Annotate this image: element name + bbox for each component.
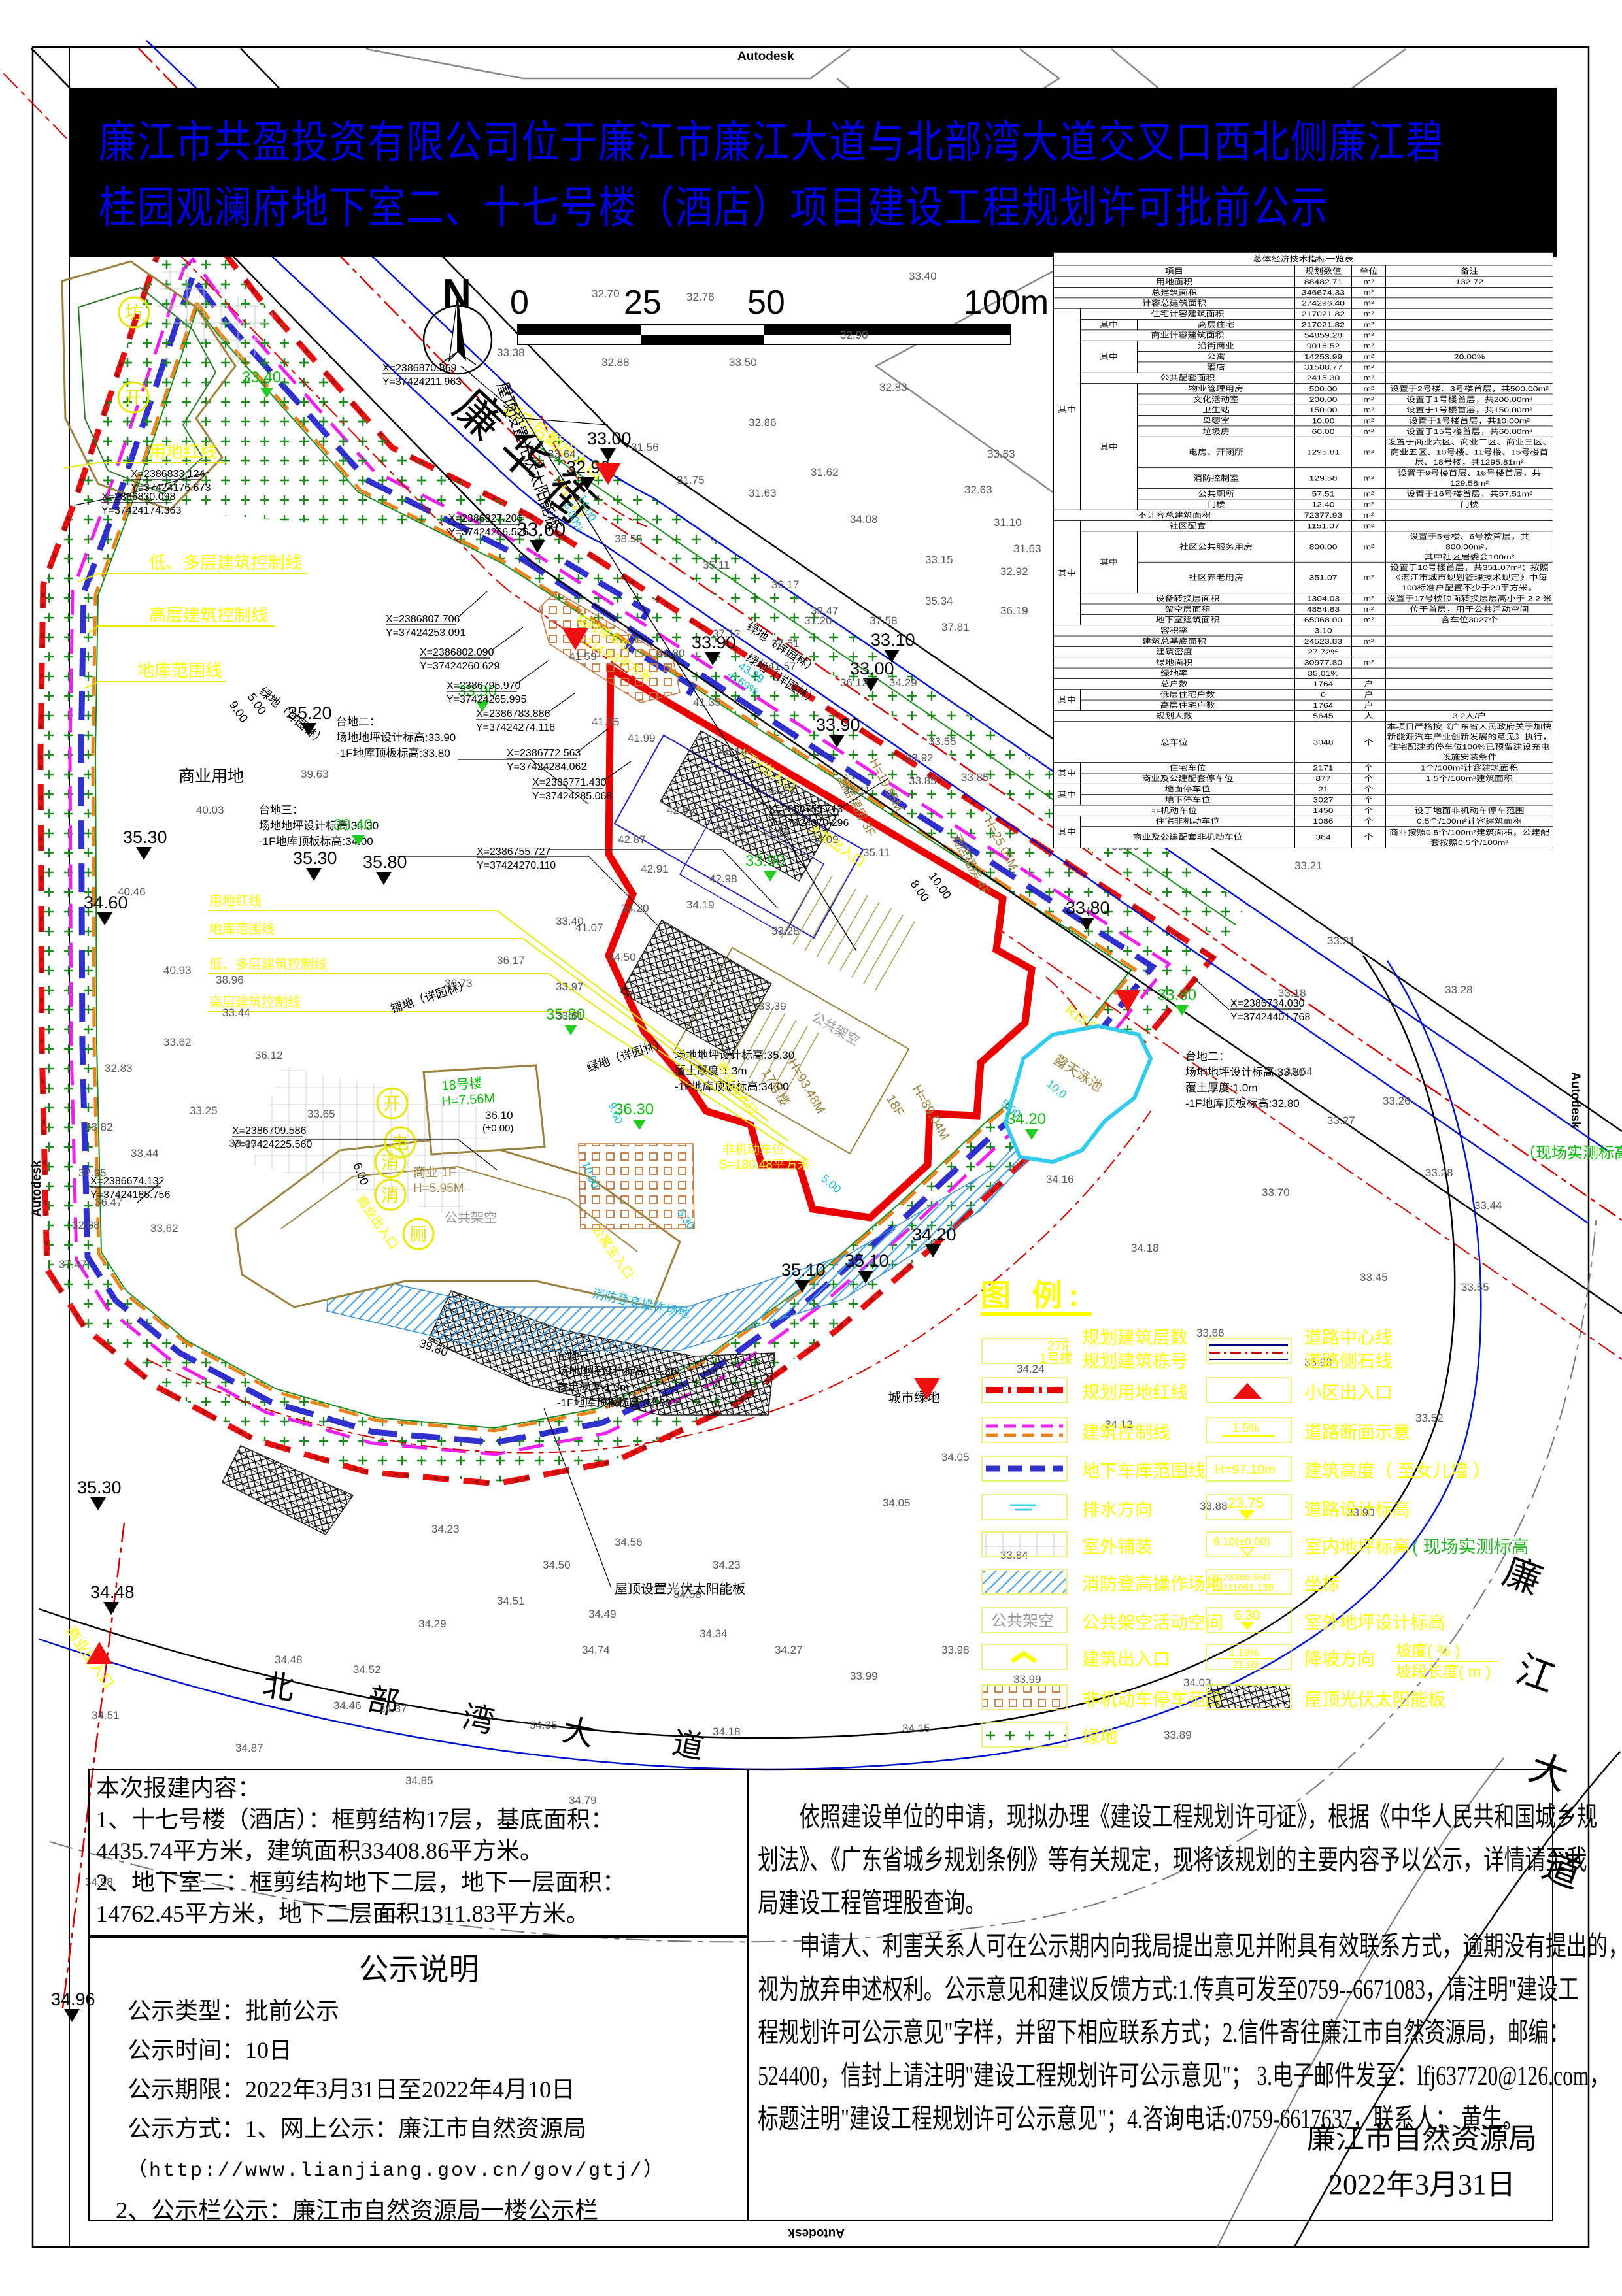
svg-text:32.83: 32.83	[105, 1062, 133, 1074]
svg-text:商业用地: 商业用地	[178, 767, 244, 786]
svg-text:34.16: 34.16	[1046, 1173, 1074, 1186]
svg-text:40.46: 40.46	[118, 886, 146, 898]
svg-text:34.87: 34.87	[235, 1742, 263, 1754]
svg-text:34.05: 34.05	[883, 1497, 911, 1509]
svg-text:32.90: 32.90	[840, 329, 868, 341]
svg-text:34.58: 34.58	[673, 1588, 701, 1601]
svg-text:35.11: 35.11	[703, 559, 730, 571]
svg-text:41.35: 41.35	[693, 696, 721, 708]
svg-text:34.15: 34.15	[902, 1722, 930, 1735]
svg-text:33.55: 33.55	[1461, 1281, 1489, 1293]
svg-text:34.23: 34.23	[431, 1523, 460, 1535]
svg-text:33.40: 33.40	[333, 816, 373, 834]
svg-text:建筑控制线: 建筑控制线	[1082, 1423, 1170, 1442]
svg-text:34.03: 34.03	[1183, 1676, 1211, 1689]
svg-text:规划用地红线: 规划用地红线	[1082, 1383, 1188, 1403]
svg-text:Y=37424211.963: Y=37424211.963	[382, 376, 462, 388]
svg-text:31.75: 31.75	[677, 474, 705, 486]
svg-text:廉: 廉	[1498, 1550, 1548, 1603]
svg-text:50: 50	[747, 284, 785, 322]
svg-text:34.34: 34.34	[700, 1627, 728, 1640]
svg-text:42.87: 42.87	[618, 833, 646, 846]
svg-text:33.99: 33.99	[1013, 1673, 1041, 1686]
svg-text:33.39: 33.39	[758, 1000, 786, 1012]
svg-text:31.10: 31.10	[994, 516, 1022, 529]
svg-text:0: 0	[510, 284, 529, 322]
svg-text:北: 北	[260, 1668, 296, 1706]
svg-text:33.89: 33.89	[1164, 1729, 1192, 1741]
svg-text:33.40: 33.40	[556, 915, 584, 927]
svg-text:34.29: 34.29	[889, 676, 917, 689]
svg-text:34.09: 34.09	[811, 833, 839, 846]
svg-text:34.48: 34.48	[275, 1654, 303, 1666]
svg-text:33.70: 33.70	[1262, 1186, 1290, 1199]
svg-text:35.10: 35.10	[845, 1251, 889, 1271]
svg-text:台地二：: 台地二：	[336, 716, 380, 728]
svg-text:1号楼: 1号楼	[1039, 1351, 1073, 1366]
svg-text:覆土厚度:1.3m: 覆土厚度:1.3m	[557, 1381, 630, 1393]
svg-text:33.99: 33.99	[850, 1670, 878, 1682]
svg-text:35.10: 35.10	[781, 1260, 826, 1280]
svg-text:-1F地库顶板标高:32.80: -1F地库顶板标高:32.80	[1185, 1097, 1300, 1110]
svg-text:湾: 湾	[460, 1700, 497, 1740]
svg-text:33.66: 33.66	[1196, 1327, 1225, 1339]
svg-text:台地三：: 台地三：	[557, 1350, 601, 1362]
svg-text:38.96: 38.96	[216, 974, 244, 986]
svg-text:35.11: 35.11	[863, 846, 890, 859]
svg-text:Y=37424270.110: Y=37424270.110	[477, 860, 556, 871]
svg-text:39.63: 39.63	[301, 768, 329, 780]
svg-text:33.82: 33.82	[85, 1121, 113, 1133]
svg-text:41.16: 41.16	[762, 827, 790, 839]
svg-text:41.57: 41.57	[768, 660, 796, 673]
svg-text:34.74: 34.74	[582, 1644, 610, 1656]
svg-text:X=2386870.869: X=2386870.869	[382, 363, 457, 374]
svg-text:S=180.48平方米: S=180.48平方米	[719, 1157, 810, 1172]
svg-text:H=97.10m: H=97.10m	[1215, 1463, 1276, 1477]
svg-text:开: 开	[124, 388, 142, 408]
svg-text:非机动车停车范围: 非机动车停车范围	[1082, 1690, 1223, 1710]
svg-text:34.49: 34.49	[588, 1608, 617, 1620]
svg-text:坐标: 坐标	[1304, 1574, 1340, 1594]
svg-text:道路设计标高: 道路设计标高	[1304, 1500, 1410, 1520]
svg-text:33.65: 33.65	[307, 1108, 335, 1120]
svg-text:部: 部	[365, 1682, 401, 1722]
svg-text:34.48: 34.48	[90, 1582, 135, 1602]
svg-text:（现场实测标高: （现场实测标高	[1520, 1144, 1622, 1162]
svg-text:低、多层建筑控制线: 低、多层建筑控制线	[149, 553, 302, 573]
svg-text:Y=37424266.526: Y=37424266.526	[448, 527, 528, 538]
svg-text:Y=37424253.091: Y=37424253.091	[386, 627, 465, 639]
svg-text:大: 大	[560, 1713, 597, 1753]
svg-text:42.91: 42.91	[641, 863, 669, 875]
svg-text:31.62: 31.62	[811, 466, 839, 478]
svg-text:用地红线: 用地红线	[149, 442, 217, 461]
svg-text:42.69: 42.69	[667, 804, 695, 816]
svg-text:32.86: 32.86	[749, 416, 777, 429]
svg-text:31.20: 31.20	[804, 614, 832, 627]
svg-text:33.21: 33.21	[1294, 859, 1323, 872]
svg-text:36.19: 36.19	[1000, 605, 1028, 617]
svg-text:场地地坪设计标高:33.90: 场地地坪设计标高:33.90	[336, 731, 456, 744]
svg-text:36.30: 36.30	[615, 1101, 654, 1118]
svg-text:开: 开	[383, 1094, 401, 1114]
svg-text:32.88: 32.88	[601, 356, 630, 369]
svg-text:X=2386755.713: X=2386755.713	[769, 804, 843, 815]
svg-text:25: 25	[624, 284, 662, 322]
svg-text:36.17: 36.17	[771, 578, 800, 591]
svg-text:建筑高度（ 至女儿墙 ）: 建筑高度（ 至女儿墙 ）	[1304, 1461, 1491, 1481]
svg-text:33.52: 33.52	[1415, 1412, 1444, 1424]
svg-text:图 例:: 图 例:	[981, 1278, 1085, 1312]
svg-text:室外地坪设计标高: 室外地坪设计标高	[1304, 1613, 1445, 1633]
svg-text:用地红线: 用地红线	[209, 893, 262, 908]
svg-text:36.12: 36.12	[255, 1049, 283, 1061]
svg-text:33.27: 33.27	[1327, 1114, 1355, 1127]
svg-text:34.27: 34.27	[775, 1644, 803, 1656]
svg-text:36.47: 36.47	[95, 1196, 123, 1208]
svg-text:33.28: 33.28	[1425, 1167, 1453, 1179]
svg-text:消防登高操作场地: 消防登高操作场地	[1082, 1574, 1223, 1594]
svg-text:34.51: 34.51	[497, 1595, 525, 1607]
svg-text:34.20: 34.20	[912, 1225, 956, 1244]
svg-text:Y=111061.139: Y=111061.139	[1211, 1582, 1274, 1593]
svg-text:33.64: 33.64	[1285, 1065, 1313, 1078]
svg-text:33.62: 33.62	[150, 1222, 178, 1235]
svg-text:32.88: 32.88	[72, 1219, 100, 1231]
svg-text:41.59: 41.59	[569, 650, 597, 663]
svg-text:33.64: 33.64	[548, 448, 576, 460]
svg-text:绿地（详园林）: 绿地（详园林）	[585, 1037, 667, 1074]
svg-text:32.92: 32.92	[1000, 565, 1028, 578]
svg-text:9.00: 9.00	[227, 699, 250, 725]
svg-text:规划建筑层数: 规划建筑层数	[1082, 1328, 1188, 1348]
svg-text:31.63: 31.63	[749, 487, 777, 499]
svg-text:1.19%: 1.19%	[1229, 1648, 1259, 1659]
svg-text:33.55: 33.55	[928, 735, 956, 748]
svg-text:地下车库范围线: 地下车库范围线	[1082, 1461, 1206, 1481]
svg-text:33.25: 33.25	[190, 1105, 218, 1117]
svg-text:33.90: 33.90	[745, 852, 785, 870]
svg-text:34.56: 34.56	[615, 1536, 643, 1548]
svg-text:36.12: 36.12	[840, 676, 868, 689]
svg-text:37.51: 37.51	[771, 637, 800, 650]
svg-text:城市绿地: 城市绿地	[888, 1390, 940, 1405]
svg-text:Y=37424401.768: Y=37424401.768	[1230, 1012, 1310, 1023]
svg-text:室内地坪标高: 室内地坪标高	[1304, 1537, 1410, 1557]
svg-text:Y=37424284.062: Y=37424284.062	[507, 761, 586, 773]
svg-text:37.58: 37.58	[870, 614, 898, 627]
svg-text:42.14: 42.14	[719, 745, 747, 757]
svg-text:降坡方向: 降坡方向	[1304, 1650, 1375, 1669]
svg-text:X=2386830.098: X=2386830.098	[101, 491, 176, 503]
svg-text:33.28: 33.28	[771, 925, 800, 937]
svg-text:33.38: 33.38	[497, 346, 525, 359]
svg-text:33.18: 33.18	[1278, 987, 1306, 999]
svg-text:厕: 厕	[409, 1225, 427, 1244]
svg-text:台地三：: 台地三：	[259, 804, 303, 816]
svg-text:坡度( % ): 坡度( % )	[1396, 1642, 1461, 1660]
svg-text:40.93: 40.93	[163, 964, 192, 976]
svg-text:32.83: 32.83	[879, 381, 907, 393]
svg-text:场地地坪设计标高:35.30: 场地地坪设计标高:35.30	[557, 1365, 677, 1378]
svg-text:31.56: 31.56	[631, 441, 659, 454]
svg-text:34.35: 34.35	[530, 1719, 558, 1731]
svg-text:高层建筑控制线: 高层建筑控制线	[149, 605, 268, 625]
svg-text:X=2386833.124: X=2386833.124	[131, 469, 205, 480]
svg-text:38.53: 38.53	[615, 533, 643, 545]
svg-text:40.03: 40.03	[196, 804, 224, 816]
svg-text:33.85: 33.85	[909, 774, 937, 787]
svg-text:道路侧石线: 道路侧石线	[1304, 1352, 1393, 1371]
svg-text:34.11: 34.11	[843, 784, 870, 797]
svg-text:34.19: 34.19	[686, 899, 715, 911]
svg-text:X=2386827.206: X=2386827.206	[448, 513, 523, 524]
svg-text:33.40: 33.40	[242, 369, 281, 386]
svg-text:坡段长度( m ): 坡段长度( m )	[1396, 1663, 1491, 1681]
svg-text:35.80: 35.80	[363, 852, 407, 872]
svg-text:X=2386771.430: X=2386771.430	[532, 777, 607, 788]
svg-text:33.97: 33.97	[556, 980, 584, 993]
svg-text:低、多层建筑控制线: 低、多层建筑控制线	[209, 957, 327, 972]
svg-text:35.30: 35.30	[293, 848, 337, 868]
svg-text:41.80: 41.80	[657, 647, 685, 659]
svg-text:37.81: 37.81	[941, 621, 970, 633]
svg-text:33.44: 33.44	[222, 1007, 250, 1019]
svg-text:33.49: 33.49	[229, 1137, 257, 1150]
svg-text:建筑出入口: 建筑出入口	[1082, 1650, 1170, 1669]
svg-text:江: 江	[1511, 1648, 1561, 1701]
svg-text:公共架空: 公共架空	[445, 1210, 497, 1225]
svg-text:覆土厚度:1.0m: 覆土厚度:1.0m	[1185, 1082, 1258, 1094]
svg-text:地库范围线: 地库范围线	[137, 661, 222, 680]
svg-text:33.45: 33.45	[1360, 1271, 1388, 1284]
svg-text:道路断面示意: 道路断面示意	[1304, 1423, 1410, 1442]
svg-text:33.92: 33.92	[905, 752, 934, 764]
svg-text:23.75: 23.75	[1228, 1495, 1264, 1511]
svg-text:33.80: 33.80	[1157, 986, 1196, 1004]
svg-text:地库范围线: 地库范围线	[209, 922, 275, 937]
svg-text:绿地: 绿地	[1082, 1727, 1117, 1747]
svg-text:33.10: 33.10	[871, 630, 915, 650]
svg-text:6.30: 6.30	[1234, 1608, 1260, 1623]
svg-text:33.44: 33.44	[1474, 1199, 1502, 1212]
svg-text:34.05: 34.05	[941, 1451, 970, 1463]
svg-text:Y=37424265.995: Y=37424265.995	[447, 694, 526, 705]
svg-text:36.17: 36.17	[497, 954, 525, 967]
svg-text:33.44: 33.44	[131, 1147, 159, 1159]
svg-text:35.20: 35.20	[288, 703, 332, 723]
svg-text:排水方向: 排水方向	[1082, 1500, 1153, 1520]
svg-text:商业出入口: 商业出入口	[63, 1623, 118, 1691]
svg-text:34.08: 34.08	[850, 513, 878, 525]
svg-text:33.85: 33.85	[961, 771, 989, 784]
svg-text:Y=37424274.118: Y=37424274.118	[476, 722, 555, 733]
svg-text:X=2386709.586: X=2386709.586	[232, 1125, 307, 1137]
svg-text:6.10(±0.00): 6.10(±0.00)	[1213, 1535, 1270, 1548]
svg-text:1.5%: 1.5%	[1232, 1422, 1259, 1435]
svg-text:Y=37424174.363: Y=37424174.363	[101, 505, 181, 516]
svg-text:X=2386783.886: X=2386783.886	[476, 708, 550, 720]
svg-text:X=2386807.706: X=2386807.706	[386, 614, 460, 625]
svg-text:34.50: 34.50	[608, 951, 636, 963]
svg-text:N: N	[442, 271, 471, 316]
svg-text:X=23366.950: X=23366.950	[1211, 1572, 1270, 1583]
svg-text:33.21: 33.21	[1327, 935, 1355, 947]
svg-text:33.80: 33.80	[1066, 898, 1110, 918]
svg-text:34.29: 34.29	[418, 1618, 447, 1630]
svg-text:消: 消	[381, 1186, 399, 1205]
svg-text:34.18: 34.18	[713, 1725, 741, 1738]
svg-text:21.09: 21.09	[1232, 1659, 1259, 1671]
svg-text:X=2386734.030: X=2386734.030	[1230, 998, 1305, 1009]
svg-text:35.34: 35.34	[925, 595, 953, 607]
svg-text:33.50: 33.50	[729, 356, 757, 369]
svg-text:道路中心线: 道路中心线	[1304, 1328, 1393, 1348]
svg-text:Y=37424285.068: Y=37424285.068	[532, 791, 612, 802]
svg-text:34.37: 34.37	[379, 1703, 407, 1715]
svg-text:35.30: 35.30	[77, 1478, 122, 1497]
svg-text:42.98: 42.98	[709, 873, 737, 885]
svg-text:非机动车位: 非机动车位	[722, 1142, 785, 1157]
svg-text:33.61: 33.61	[556, 1010, 584, 1022]
svg-text:32.76: 32.76	[686, 291, 715, 303]
svg-text:( 现场实测标高: ( 现场实测标高	[1412, 1537, 1529, 1557]
svg-text:34.20: 34.20	[1007, 1110, 1046, 1128]
svg-text:32.95: 32.95	[78, 1167, 107, 1179]
svg-text:36.73: 36.73	[445, 977, 473, 990]
svg-text:X=2386755.727: X=2386755.727	[477, 846, 551, 857]
svg-text:台地二：: 台地二：	[1185, 1050, 1230, 1063]
svg-text:37.47: 37.47	[59, 1258, 87, 1271]
svg-text:34.23: 34.23	[713, 1559, 741, 1571]
svg-text:33.28: 33.28	[1445, 984, 1473, 996]
svg-text:32.63: 32.63	[964, 484, 992, 496]
svg-text:37.12: 37.12	[713, 627, 741, 640]
svg-text:43.70: 43.70	[716, 824, 744, 836]
svg-text:34.20: 34.20	[621, 902, 649, 914]
svg-text:X=2386772.563: X=2386772.563	[507, 748, 581, 759]
svg-text:33.40: 33.40	[909, 270, 937, 282]
svg-text:33.90: 33.90	[816, 715, 860, 735]
svg-text:规划建筑栋号: 规划建筑栋号	[1082, 1352, 1188, 1371]
svg-text:33.62: 33.62	[163, 1036, 192, 1048]
svg-text:-1F地库顶板标高:34.00: -1F地库顶板标高:34.00	[557, 1397, 671, 1409]
svg-text:X=2386802.090: X=2386802.090	[420, 647, 494, 658]
svg-text:34.46: 34.46	[333, 1699, 362, 1712]
svg-text:34.18: 34.18	[1131, 1242, 1159, 1254]
svg-text:33.15: 33.15	[925, 554, 953, 566]
svg-text:屋顶光伏太阳能板: 屋顶光伏太阳能板	[1304, 1690, 1445, 1710]
svg-text:100m: 100m	[964, 284, 1049, 322]
svg-text:33.88: 33.88	[1200, 1500, 1228, 1512]
svg-text:34.50: 34.50	[543, 1559, 571, 1571]
svg-text:31.63: 31.63	[1013, 542, 1041, 555]
svg-text:32.70: 32.70	[592, 288, 620, 300]
svg-text:-1F地库顶板标高:33.80: -1F地库顶板标高:33.80	[336, 747, 450, 759]
svg-text:消: 消	[381, 1153, 399, 1173]
svg-text:33.00: 33.00	[587, 429, 632, 448]
svg-text:公共架空: 公共架空	[991, 1612, 1054, 1630]
svg-text:35.30: 35.30	[123, 827, 167, 847]
svg-text:33.98: 33.98	[941, 1644, 970, 1656]
svg-text:道: 道	[669, 1726, 707, 1766]
svg-text:室外铺装: 室外铺装	[1082, 1537, 1153, 1557]
svg-text:小区出入口: 小区出入口	[1304, 1383, 1393, 1403]
svg-text:33.26: 33.26	[1383, 1095, 1411, 1107]
svg-text:公共架空活动空间: 公共架空活动空间	[1082, 1613, 1223, 1633]
svg-text:X=2386795.970: X=2386795.970	[447, 680, 521, 691]
svg-text:33.00: 33.00	[850, 659, 894, 678]
svg-text:18号楼: 18号楼	[441, 1076, 483, 1093]
svg-text:41.99: 41.99	[628, 732, 656, 744]
svg-text:Y=37424260.629: Y=37424260.629	[420, 661, 499, 672]
svg-text:34.52: 34.52	[353, 1663, 381, 1676]
svg-text:33.63: 33.63	[987, 448, 1015, 460]
svg-text:34.51: 34.51	[92, 1709, 120, 1722]
svg-text:41.95: 41.95	[592, 716, 620, 728]
svg-text:43.57: 43.57	[768, 784, 796, 797]
svg-text:坊: 坊	[125, 303, 143, 323]
